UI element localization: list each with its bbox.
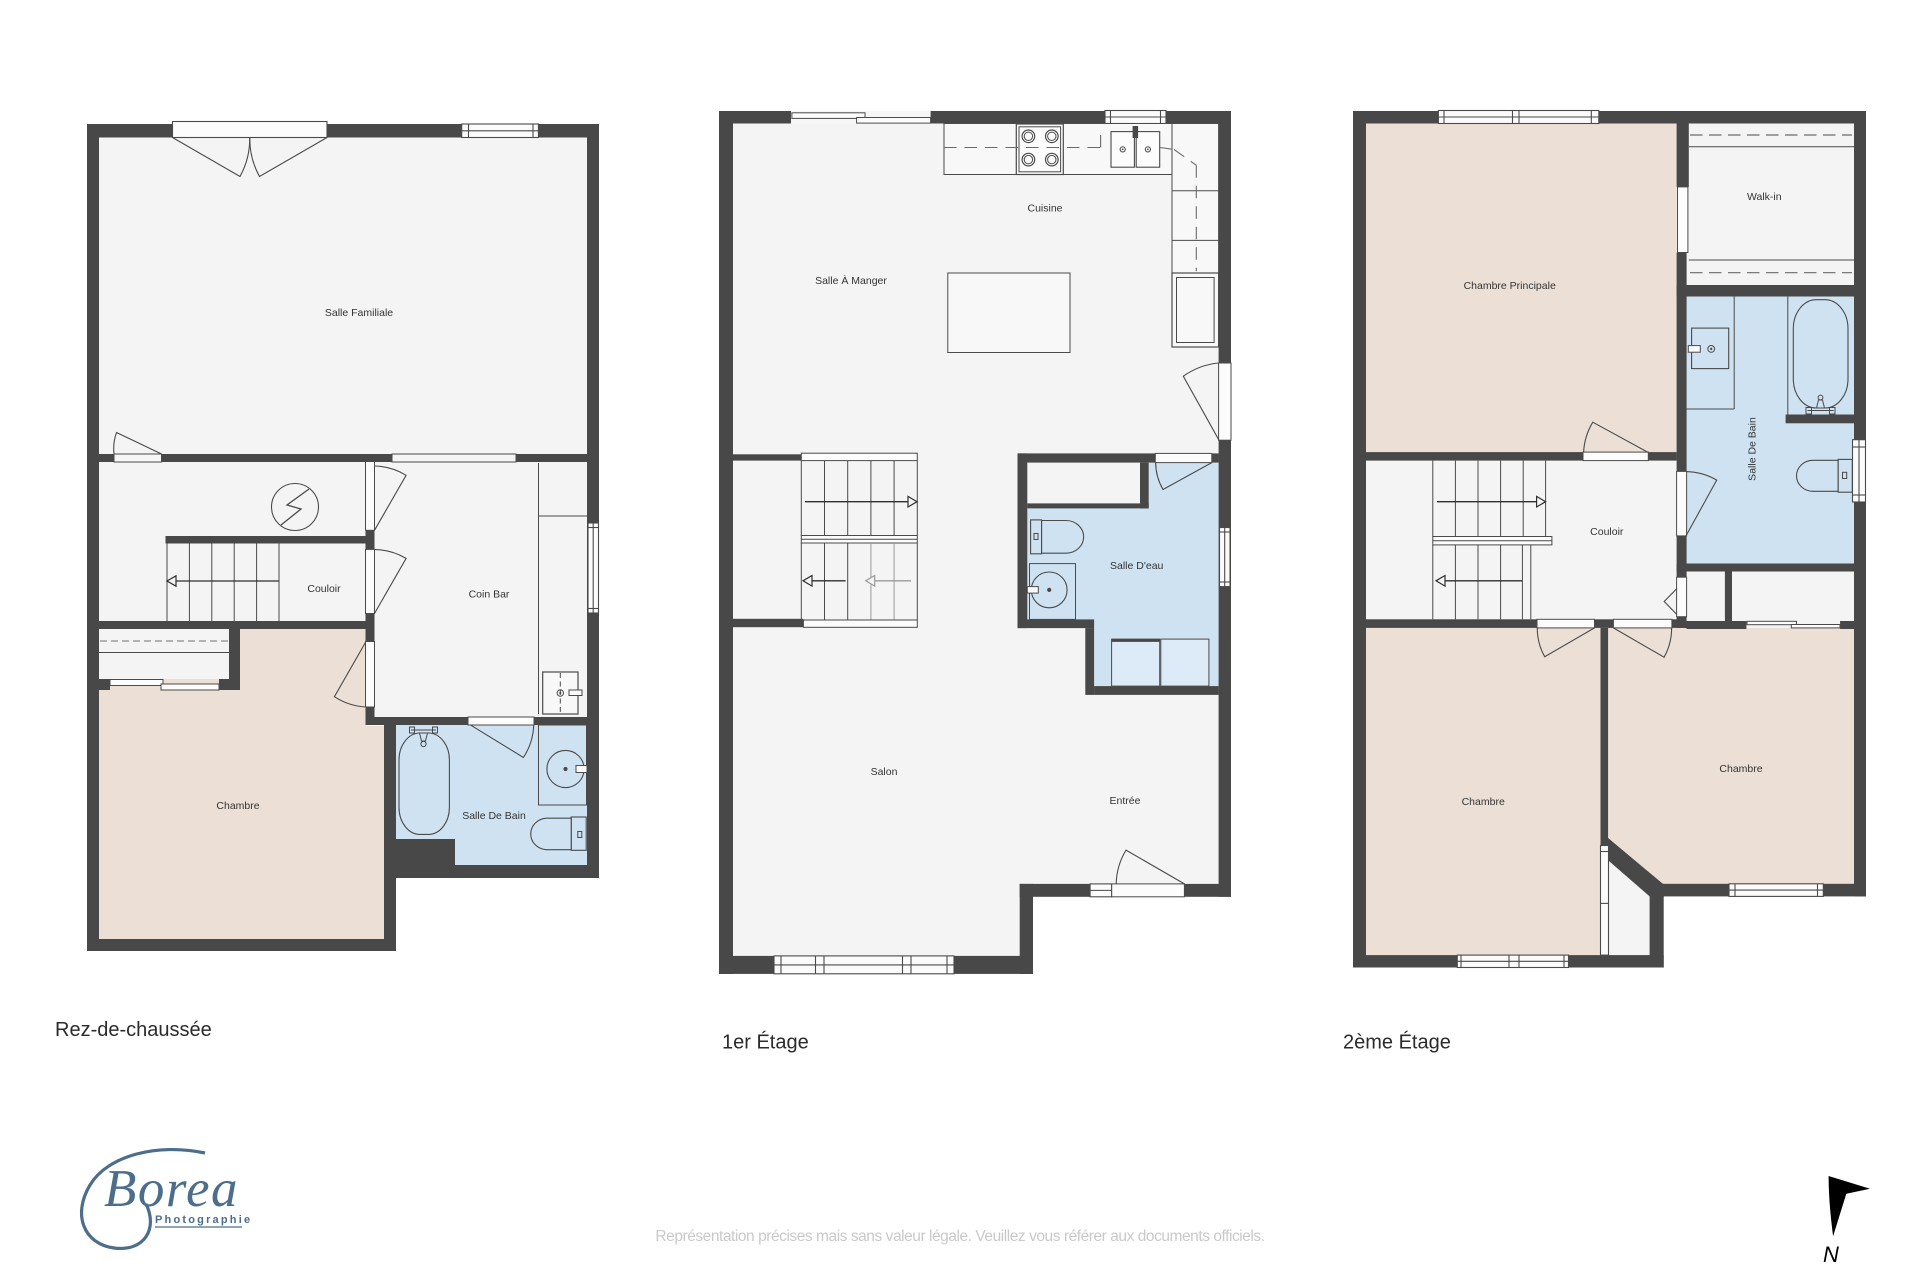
svg-text:Salle Familiale: Salle Familiale [325, 307, 393, 319]
svg-text:Cuisine: Cuisine [1027, 203, 1062, 215]
svg-text:Rez-de-chaussée: Rez-de-chaussée [55, 1019, 212, 1041]
svg-text:Salle À Manger: Salle À Manger [815, 274, 887, 287]
svg-text:Coin Bar: Coin Bar [469, 589, 510, 601]
svg-text:N: N [1823, 1242, 1839, 1267]
svg-text:Salle De Bain: Salle De Bain [1747, 417, 1759, 481]
svg-text:Couloir: Couloir [307, 583, 341, 595]
svg-text:Chambre: Chambre [1462, 796, 1505, 808]
svg-text:Entrée: Entrée [1110, 795, 1141, 807]
svg-text:Borea: Borea [104, 1160, 239, 1218]
svg-text:1er Étage: 1er Étage [722, 1031, 809, 1054]
svg-text:Chambre: Chambre [216, 800, 259, 812]
svg-text:Salle De Bain: Salle De Bain [462, 810, 526, 822]
svg-text:Couloir: Couloir [1590, 526, 1624, 538]
svg-text:Représentation précises mais s: Représentation précises mais sans valeur… [655, 1228, 1264, 1245]
svg-text:Walk-in: Walk-in [1747, 191, 1782, 203]
svg-text:Chambre Principale: Chambre Principale [1464, 280, 1556, 292]
svg-text:Salon: Salon [871, 766, 898, 778]
svg-text:2ème Étage: 2ème Étage [1343, 1031, 1451, 1054]
svg-text:Salle D'eau: Salle D'eau [1110, 560, 1164, 572]
svg-text:Photographie: Photographie [155, 1214, 252, 1226]
svg-text:Chambre: Chambre [1719, 763, 1762, 775]
